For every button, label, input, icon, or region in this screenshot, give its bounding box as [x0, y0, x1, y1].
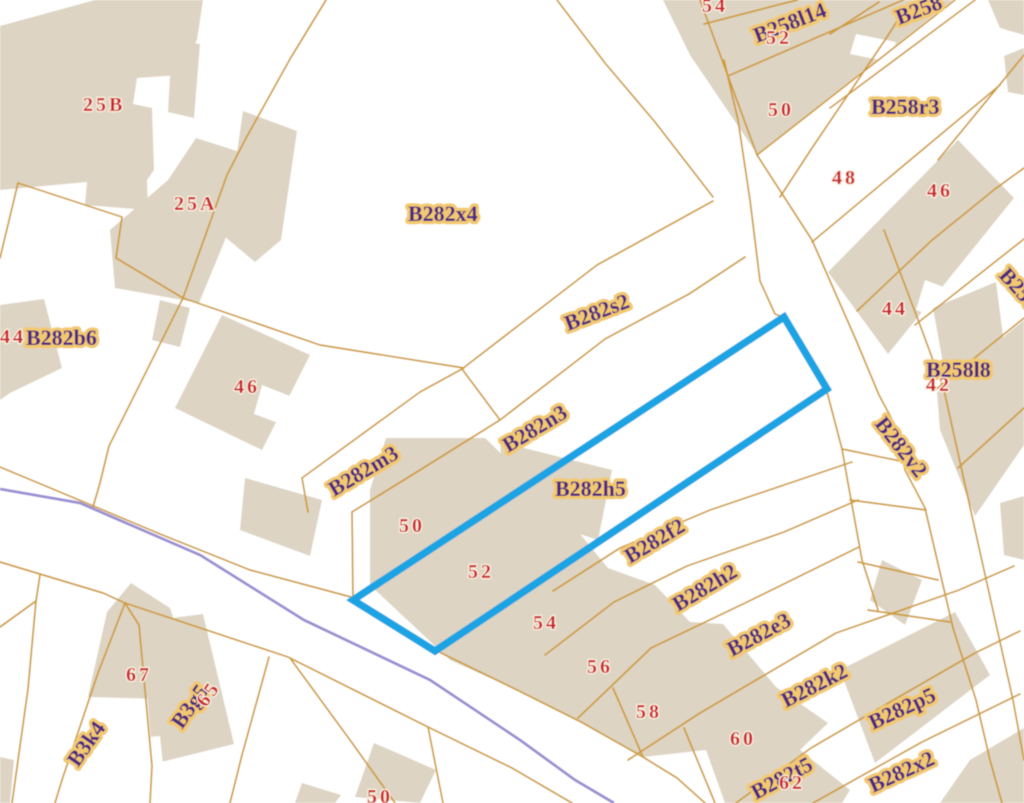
svg-text:25B: 25B	[83, 94, 125, 116]
svg-text:58: 58	[636, 701, 662, 723]
svg-text:46: 46	[927, 180, 953, 202]
svg-text:62: 62	[779, 772, 805, 794]
svg-text:42: 42	[926, 374, 952, 396]
svg-text:54: 54	[702, 0, 728, 17]
svg-text:B282h5: B282h5	[555, 476, 626, 501]
svg-text:54: 54	[533, 612, 559, 634]
svg-text:52: 52	[766, 27, 792, 49]
svg-text:46: 46	[234, 376, 260, 398]
svg-text:44: 44	[882, 298, 908, 320]
svg-text:50: 50	[399, 515, 425, 537]
svg-text:25A: 25A	[174, 193, 217, 215]
svg-text:67: 67	[126, 664, 152, 686]
svg-text:56: 56	[587, 656, 613, 678]
svg-text:50: 50	[768, 99, 794, 121]
svg-text:48: 48	[832, 167, 858, 189]
svg-text:50: 50	[367, 786, 393, 803]
svg-text:B282x4: B282x4	[408, 201, 478, 226]
svg-text:B258r3: B258r3	[871, 94, 939, 119]
svg-text:60: 60	[730, 728, 756, 750]
svg-text:B282b6: B282b6	[26, 325, 97, 350]
svg-text:52: 52	[468, 561, 494, 583]
